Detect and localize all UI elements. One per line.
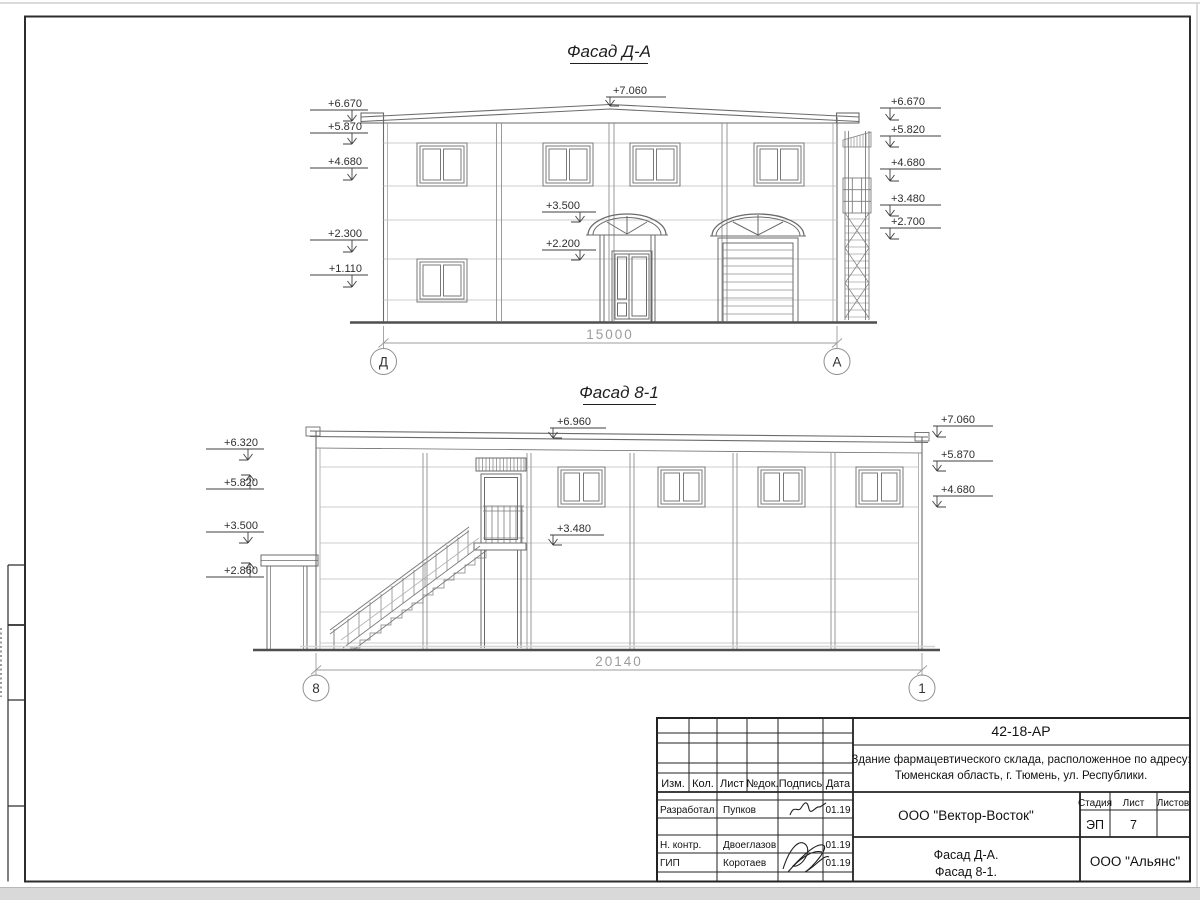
svg-text:+3.480: +3.480 (557, 523, 591, 535)
building-outline (361, 105, 859, 323)
axis-label: 8 (312, 681, 320, 696)
entrance-door (586, 214, 668, 322)
elevation-marks-center: +6.960 +3.480 (549, 416, 607, 545)
upper-door (474, 458, 526, 648)
left-frame-column (1, 565, 25, 882)
elevation-mark: +4.680 (310, 156, 368, 180)
sheet-value: 7 (1130, 818, 1137, 832)
signature-row: Н. контр. Двоеглазов 01.19 (660, 840, 851, 851)
role: ГИП (660, 858, 680, 869)
elevation-mark: +6.670 (880, 96, 941, 120)
dimension-text: 15000 (586, 327, 634, 342)
drawing-title: Фасад Д-А (567, 42, 651, 61)
svg-text:+4.680: +4.680 (941, 484, 975, 496)
dimension-15000: 15000 (379, 326, 843, 349)
col-kol: Кол. (692, 778, 714, 790)
signature (790, 803, 826, 815)
gate (710, 214, 806, 322)
col-ndoc: №док. (746, 778, 778, 790)
axis-label: Д (379, 355, 388, 370)
axis-bubble-d: Д (371, 349, 397, 375)
window (558, 467, 605, 507)
dimension-20140: 20140 (311, 653, 927, 676)
person-name: Коротаев (723, 858, 766, 869)
elevation-mark: +6.960 (549, 416, 607, 438)
window (758, 467, 805, 507)
svg-text:+6.320: +6.320 (224, 437, 258, 449)
svg-text:+2.200: +2.200 (546, 238, 580, 250)
person-name: Двоеглазов (723, 840, 776, 851)
window (417, 259, 467, 302)
facade-d-a-title: Фасад Д-А (567, 42, 651, 64)
stage-value: ЭП (1086, 818, 1104, 832)
svg-text:+1.110: +1.110 (329, 263, 362, 275)
drawing-title: Фасад 8-1 (579, 383, 659, 402)
svg-text:+3.500: +3.500 (546, 200, 580, 212)
facade-d-a-drawing: Фасад Д-А (310, 42, 941, 375)
role: Разработал (660, 804, 715, 816)
elevation-mark: +5.820 (880, 124, 941, 147)
axis-bubble-1: 1 (909, 675, 935, 701)
svg-text:+7.060: +7.060 (941, 414, 975, 426)
project-address-line1: Здание фармацевтического склада, располо… (851, 754, 1190, 766)
elevation-mark: +5.820 (206, 475, 264, 489)
elevation-mark: +5.870 (310, 121, 368, 144)
sheet-content-line1: Фасад Д-А. (934, 848, 999, 862)
elevation-marks-right: +6.670 +5.820 +4.680 +3.480 +2.700 (880, 96, 941, 239)
elevation-marks-right: +7.060 +5.870 +4.680 (933, 414, 994, 507)
designer-org: ООО "Вектор-Восток" (898, 808, 1034, 823)
elevation-mark: +2.300 (310, 228, 368, 252)
elevation-marks-left: +6.670 +5.870 +4.680 +2.300 +1.110 (310, 98, 368, 287)
project-address-line2: Тюменская область, г. Тюмень, ул. Респуб… (895, 770, 1148, 782)
svg-text:+7.060: +7.060 (613, 85, 647, 97)
elevation-mark: +2.200 (542, 238, 596, 260)
fire-ladder (843, 131, 871, 320)
date: 01.19 (825, 858, 850, 869)
building-outline (306, 427, 929, 650)
svg-text:+5.820: +5.820 (891, 124, 925, 136)
drawing-sheet: Фасад Д-А (0, 0, 1200, 900)
stage-label: Стадия (1078, 798, 1112, 809)
elevation-mark: +7.060 (606, 85, 667, 106)
axis-label: А (832, 355, 841, 370)
svg-text:+5.870: +5.870 (941, 449, 975, 461)
svg-text:+4.680: +4.680 (891, 157, 925, 169)
axis-bubble-a: А (824, 349, 850, 375)
dimension-text: 20140 (595, 654, 643, 669)
sheets-label: Листов (1157, 798, 1190, 809)
window (754, 143, 804, 186)
svg-text:+2.700: +2.700 (891, 216, 925, 228)
elevation-mark: +6.670 (310, 98, 368, 121)
svg-text:+5.870: +5.870 (328, 121, 362, 133)
facade-8-1-drawing: Фасад 8-1 (206, 383, 993, 701)
elevation-mark: +1.110 (310, 263, 368, 287)
svg-text:+3.500: +3.500 (224, 520, 258, 532)
title-block: Изм. Кол. Лист №док. Подпись Дата Разраб… (657, 718, 1191, 882)
date: 01.19 (825, 805, 850, 816)
date: 01.19 (825, 840, 850, 851)
window (856, 467, 903, 507)
document-code: 42-18-АР (991, 723, 1050, 739)
canopy-hatch (479, 458, 524, 471)
sheet-label: Лист (1123, 798, 1145, 809)
client-org: ООО "Альянс" (1090, 854, 1180, 869)
col-podpis: Подпись (779, 778, 823, 790)
elevation-mark: +4.680 (880, 157, 941, 181)
window (658, 467, 705, 507)
far-railing (341, 538, 479, 640)
signature-row: Разработал Пупков 01.19 (660, 803, 851, 816)
col-list: Лист (720, 778, 744, 790)
facade-8-1-title: Фасад 8-1 (579, 383, 659, 405)
elevation-mark: +7.060 (933, 414, 994, 437)
sheet-canvas: Фасад Д-А (0, 0, 1200, 900)
svg-text:+6.670: +6.670 (328, 98, 362, 110)
elevation-mark: +3.500 (542, 200, 596, 222)
window (630, 143, 680, 186)
signature-row: ГИП Коротаев 01.19 (660, 858, 851, 869)
svg-text:+2.300: +2.300 (328, 228, 362, 240)
window (417, 143, 467, 186)
elevation-mark: +3.500 (206, 520, 264, 543)
panel-seams (320, 467, 918, 643)
axis-bubble-8: 8 (303, 675, 329, 701)
panel-seams (384, 143, 838, 300)
signature (783, 843, 829, 872)
elevation-mark: +2.700 (880, 216, 941, 239)
person-name: Пупков (723, 805, 756, 816)
svg-text:+6.960: +6.960 (557, 416, 591, 428)
elevation-mark: +5.870 (933, 449, 994, 471)
elevation-mark: +2.860 (206, 563, 264, 577)
axis-label: 1 (918, 681, 926, 696)
role: Н. контр. (660, 840, 701, 851)
exterior-stair (330, 527, 487, 651)
svg-text:+4.680: +4.680 (328, 156, 362, 168)
sheet-content-line2: Фасад 8-1. (935, 865, 997, 879)
elevation-mark: +4.680 (933, 484, 994, 507)
elevation-mark: +3.480 (880, 193, 941, 216)
sheet-frame (25, 17, 1190, 882)
svg-text:+3.480: +3.480 (891, 193, 925, 205)
col-izm: Изм. (661, 778, 685, 790)
elevation-mark: +3.480 (549, 523, 605, 545)
col-data: Дата (826, 778, 851, 790)
elevation-marks-left: +6.320 +5.820 +3.500 +2.860 (206, 437, 264, 577)
window (543, 143, 593, 186)
annex (261, 555, 318, 649)
elevation-mark: +6.320 (206, 437, 264, 460)
svg-text:+6.670: +6.670 (891, 96, 925, 108)
